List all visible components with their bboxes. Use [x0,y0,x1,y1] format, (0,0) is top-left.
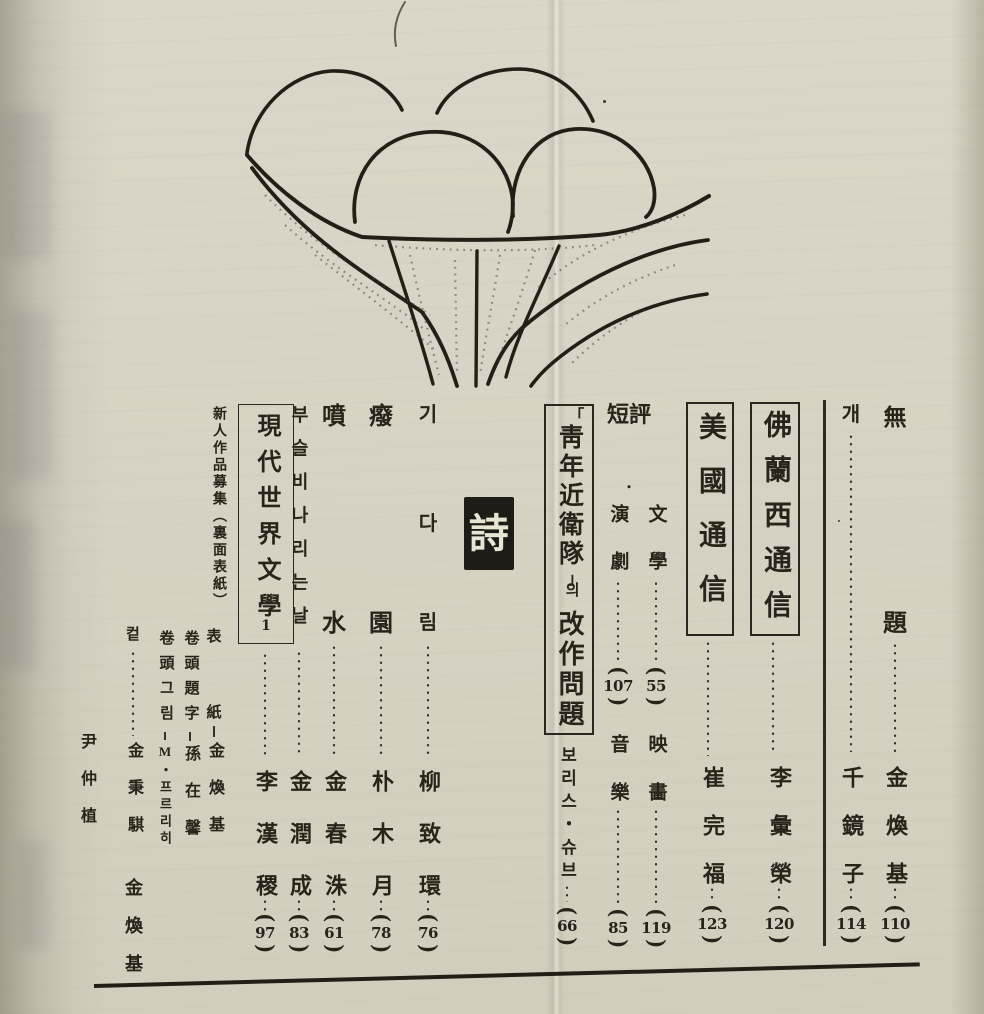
leader-dots [566,884,569,902]
paren-bottom: ) [560,938,574,947]
paren-bottom: ) [649,698,663,707]
entry-title: 림 [419,613,437,633]
entry-title: 噴 [322,405,346,429]
page-digits: 119 [641,921,671,936]
paren-bottom: ) [705,936,719,945]
right-leaf-mid-edge [488,240,708,384]
page-digits: 110 [880,917,910,932]
paren-top: ( [649,908,663,917]
page-number: ( 55 ) [646,666,666,707]
toc-entry-mudae: 無 題 金煥基 ( 110 ) [877,0,913,1014]
leader-dots [380,644,383,756]
credit-dash [213,726,215,737]
section-divider-rule [823,400,826,946]
credit-name: 金煥基 [124,878,142,992]
credit-name: 尹仲植 [78,733,94,844]
leader-dots [264,652,267,756]
bleed-through-mark [4,110,52,260]
paren-bottom: ) [649,940,663,949]
page-number: ( 123 ) [697,904,727,945]
paren-top: ( [844,904,858,913]
page-number: ( 61 ) [324,913,344,954]
credit-cuts-third-name: 尹仲植 [68,0,104,1014]
leader-dots [778,886,781,901]
paren-bottom: ) [844,936,858,945]
leader-dots [333,898,336,911]
entry-title: 다 [419,514,437,534]
paren-top: ( [421,913,435,922]
leader-dots [894,642,897,752]
credit-name: 金煥基 [206,742,222,853]
paren-bottom: ) [258,945,272,954]
leader-dots [850,433,853,752]
toc-entry-gae: 개 千鏡子 ( 114 ) [833,0,869,1014]
page-number: ( 83 ) [289,913,309,954]
toc-entry-usa: 崔完福 ( 123 ) [690,0,726,1014]
page-digits: 123 [697,917,727,932]
leader-dots [711,886,714,901]
credit-name: 孫在馨 [182,745,198,856]
page-digits: 83 [289,926,309,941]
bleed-through-mark [18,840,48,950]
poetry-section-label-box: 詩 [464,497,514,570]
leader-dots [132,650,135,736]
page-number: ( 107 ) [603,666,633,707]
paren-top: ( [327,913,341,922]
paren-bottom: ) [772,936,786,945]
leader-dots [617,808,620,906]
credit-name: M・프르리히 [159,744,172,848]
credit-dash [164,732,166,740]
page-number: ( 76 ) [418,913,438,954]
leader-dots [333,644,336,756]
page-number: ( 97 ) [255,913,275,954]
credit-label: 紙 [206,706,221,721]
entry-title: 癈 [369,405,393,429]
entry-title: 水 [322,612,346,636]
leader-dots [617,580,620,664]
page-number: ( 119 ) [641,908,671,949]
toc-entry-theatre: 演劇 ( 107 ) 音樂 ( 85 ) [600,0,636,1014]
leader-dots [427,898,430,911]
paren-bottom: ) [327,945,341,954]
credit-dash [189,732,191,741]
page-digits: 55 [646,679,666,694]
toc-entry-literature: 文學 ( 55 ) 映畵 ( 119 ) [638,0,674,1014]
scanned-toc-page: 無 題 金煥基 ( 110 ) 개 千鏡子 ( 114 ) 佛蘭西通信 李彙榮 … [0,0,984,1014]
page-digits: 76 [418,926,438,941]
bleed-through-mark [10,310,52,480]
page-number: ( 66 ) [557,906,577,947]
leader-dots [707,640,710,756]
toc-entry-france: 李彙榮 ( 120 ) [755,0,791,1014]
page-digits: 97 [255,926,275,941]
paren-top: ( [374,913,388,922]
page-digits: 66 [557,919,577,934]
credit-cuts: 컽 金秉騏 金煥基 [115,0,151,1014]
leader-dots [298,650,301,756]
toc-entry-youth-guard: 보리스・슈브 ( 66 ) [549,0,585,1014]
page-digits: 85 [608,921,628,936]
paren-top: ( [292,913,306,922]
credit-name: 金秉騏 [125,742,141,853]
toc-entry-pyewon: 癈 園 朴木月 ( 78 ) [363,0,399,1014]
page-digits: 61 [324,926,344,941]
paren-top: ( [772,904,786,913]
paren-bottom: ) [611,698,625,707]
credit-frontispiece: 卷頭그림 M・프르리히 [147,0,183,1014]
leader-dots [655,580,658,664]
leader-dots [850,886,853,901]
credit-label: 表 [206,630,221,645]
entry-title: 無 [884,406,907,429]
leader-dots [655,808,658,906]
paren-top: ( [258,913,272,922]
entry-title: 기 [419,405,437,425]
page-digits: 120 [764,917,794,932]
leader-dots [894,886,897,901]
page-number: ( 120 ) [764,904,794,945]
toc-entry-bunsu: 噴 水 金春洙 ( 61 ) [316,0,352,1014]
entry-title: 개 [842,405,860,425]
page-digits: 78 [371,926,391,941]
paren-bottom: ) [421,945,435,954]
paren-top: ( [705,904,719,913]
page-number: ( 114 ) [836,904,866,945]
leader-dots [772,640,775,752]
entry-author: 보리스・슈브 [559,746,576,884]
credit-label: 卷頭그림 [158,630,173,730]
page-number: ( 85 ) [608,908,628,949]
stem-center-line [476,251,477,386]
page-number: ( 110 ) [880,904,910,945]
paren-top: ( [560,906,574,915]
paren-bottom: ) [611,940,625,949]
paren-top: ( [611,908,625,917]
page-number: ( 78 ) [371,913,391,954]
paren-top: ( [649,666,663,675]
paren-bottom: ) [888,936,902,945]
page-digits: 107 [603,679,633,694]
bleed-through-mark [0,520,36,670]
credit-label: 卷頭題字 [183,630,198,730]
paren-bottom: ) [374,945,388,954]
credit-label: 컽 [126,628,140,643]
toc-entry-gidarim: 기 다 림 柳致環 ( 76 ) [410,0,446,1014]
leader-dots [264,898,267,911]
leader-dots [427,644,430,756]
toc-entry-hyundai: 李漢稷 ( 97 ) [247,0,283,1014]
leader-dots [298,898,301,911]
entry-title: 園 [369,612,393,636]
poetry-section-label: 詩 [469,514,509,554]
entry-title: 題 [883,612,907,636]
paren-top: ( [888,904,902,913]
paren-bottom: ) [292,945,306,954]
page-digits: 114 [836,917,866,932]
edge-shadow-right [950,0,984,1014]
leader-dots [380,898,383,911]
paren-top: ( [611,666,625,675]
